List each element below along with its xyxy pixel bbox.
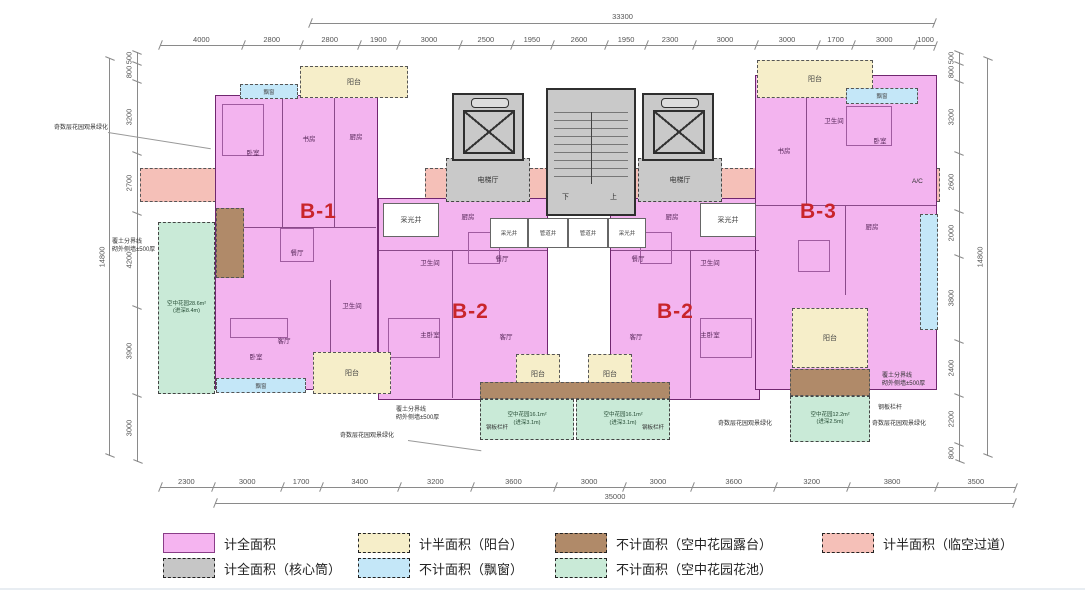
dim-value: 3200 <box>427 477 444 486</box>
annotation-railing: 钢板栏杆 <box>642 425 664 432</box>
dim-segment: 1700 <box>282 472 321 488</box>
dim-segment: 3600 <box>472 472 555 488</box>
dim-value: 1950 <box>618 35 635 44</box>
room-label: 书房 <box>778 145 791 155</box>
wall-line <box>756 205 936 206</box>
dim-segment: 800 <box>122 63 138 81</box>
right-total-dimension: 14800 <box>976 58 988 456</box>
room-label: 卧室 <box>874 135 887 145</box>
dim-value: 2400 <box>946 360 955 377</box>
dim-value: 3000 <box>650 477 667 486</box>
balcony-label: 阳台 <box>345 368 359 378</box>
dim-segment: 3200 <box>944 81 960 153</box>
room-label: 主卧室 <box>420 329 440 339</box>
right-dimension-col: 500800320026002000380024002200800 <box>944 52 960 462</box>
wall-line <box>845 205 846 295</box>
room-label: 卫生间 <box>420 257 440 267</box>
room-label: 餐厅 <box>632 253 645 263</box>
legend-item: 不计面积（空中花园露台） <box>555 533 772 553</box>
dim-value: 2300 <box>178 477 195 486</box>
dim-value: 4200 <box>124 252 133 269</box>
garden-zone: 空中花园16.1m² (进深3.1m) <box>576 399 670 440</box>
garden-depth-label: (进深3.1m) <box>514 420 541 427</box>
legend-swatch <box>555 533 607 553</box>
dim-value: 3600 <box>505 477 522 486</box>
legend-item: 计全面积 <box>163 533 276 553</box>
baywindow-zone <box>920 214 938 330</box>
annotation-railing: 钢板栏杆 <box>486 425 508 432</box>
stair-down-label: 下 <box>562 192 569 202</box>
baywindow-label: 飘窗 <box>263 88 274 96</box>
dim-value: 2800 <box>263 35 280 44</box>
dim-value: 1000 <box>917 35 934 44</box>
dim-value: 2200 <box>946 411 955 428</box>
dim-value: 3000 <box>876 35 893 44</box>
legend-swatch <box>822 533 874 553</box>
shaft-lightwell: 采光井 <box>490 218 528 248</box>
unit-label-b1: B-1 <box>300 200 337 224</box>
dim-segment: 3800 <box>848 472 935 488</box>
dim-value: 3000 <box>581 477 598 486</box>
dim-segment: 3000 <box>853 30 915 46</box>
legend-item: 计半面积（阳台） <box>358 533 523 553</box>
top-total-dimension: 33300 <box>310 12 935 24</box>
balcony-zone: 阳台 <box>792 308 868 368</box>
bottom-total-dimension: 35000 <box>215 492 1015 504</box>
dim-value: 800 <box>946 447 955 460</box>
room-label: 餐厅 <box>291 247 304 257</box>
dim-value: 3000 <box>717 35 734 44</box>
dim-segment: 2200 <box>944 395 960 444</box>
duct-label: 管道井 <box>540 229 557 237</box>
dim-value: 2800 <box>321 35 338 44</box>
left-total-label: 14800 <box>98 247 107 268</box>
elevator-hall-label: 电梯厅 <box>670 175 691 185</box>
dim-value: 1700 <box>827 35 844 44</box>
dim-segment: 2300 <box>646 30 694 46</box>
annotation-soil-wall: 覆土分界线砌外侧墙±500厚 <box>396 406 439 422</box>
dim-segment: 2400 <box>944 341 960 395</box>
legend-label: 不计面积（空中花园花池） <box>616 559 772 578</box>
legend-swatch <box>555 558 607 578</box>
furniture-table <box>798 240 830 272</box>
dim-value: 1950 <box>524 35 541 44</box>
elevator-cab-icon <box>653 110 705 154</box>
dim-segment: 3900 <box>122 307 138 394</box>
annotation-railing: 钢板栏杆 <box>878 404 902 412</box>
dim-value: 2500 <box>478 35 495 44</box>
lightwell-label: 采光井 <box>619 229 636 237</box>
legend-item: 不计面积（飘窗） <box>358 558 523 578</box>
garden-depth-label: (进深2.5m) <box>817 419 844 426</box>
dim-segment: 3200 <box>122 81 138 153</box>
dim-segment: 3000 <box>398 30 460 46</box>
dim-segment: 2800 <box>243 30 301 46</box>
annotation-greenery: 奇数层花园观景绿化 <box>340 432 394 440</box>
terrace-zone <box>790 369 870 396</box>
dim-value: 3900 <box>124 343 133 360</box>
shaft-duct: 管道井 <box>528 218 568 248</box>
dim-segment: 2000 <box>944 211 960 256</box>
garden-depth-label: (进深3.1m) <box>610 420 637 427</box>
dim-segment: 3400 <box>321 472 399 488</box>
dim-value: 3000 <box>421 35 438 44</box>
legend-item: 不计面积（空中花园花池） <box>555 558 772 578</box>
dim-segment: 3200 <box>775 472 848 488</box>
elevator-lobby-left: 电梯厅 <box>446 158 530 202</box>
dim-value: 3800 <box>884 477 901 486</box>
annotation-greenery: 奇数层花园观景绿化 <box>718 420 772 428</box>
garden-zone: 空中花园12.2m² (进深2.5m) <box>790 396 870 442</box>
wall-line <box>611 250 759 251</box>
garden-area-label: 空中花园28.6m² <box>167 301 206 308</box>
legend-swatch <box>163 558 215 578</box>
dim-value: 2600 <box>571 35 588 44</box>
room-label: 餐厅 <box>496 253 509 263</box>
room-label: 厨房 <box>666 211 679 221</box>
garden-area-label: 空中花园16.1m² <box>507 412 546 419</box>
dim-segment: 2600 <box>552 30 606 46</box>
dim-segment: 4200 <box>122 213 138 307</box>
room-label: 客厅 <box>630 331 643 341</box>
annotation-greenery: 奇数层花园观景绿化 <box>54 124 108 132</box>
room-label: 客厅 <box>500 331 513 341</box>
legend-swatch <box>358 533 410 553</box>
dim-segment: 3000 <box>213 472 282 488</box>
lightwell-left: 采光井 <box>383 203 439 237</box>
elevator-door <box>471 98 509 108</box>
stairwell: 下 上 <box>546 88 636 216</box>
legend-swatch <box>163 533 215 553</box>
dim-value: 1900 <box>370 35 387 44</box>
wall-line <box>452 250 453 398</box>
garden-area-label: 空中花园12.2m² <box>810 412 849 419</box>
room-label: 卧室 <box>247 147 260 157</box>
lightwell-label: 采光井 <box>501 229 518 237</box>
stair-divider <box>591 112 592 184</box>
room-label: 卫生间 <box>700 257 720 267</box>
bottom-total-label: 35000 <box>605 492 626 501</box>
wall-line <box>282 97 283 227</box>
bottom-dimension-row: 2300300017003400320036003000300036003200… <box>160 472 1016 488</box>
dim-segment: 3600 <box>692 472 775 488</box>
room-label: 书房 <box>303 133 316 143</box>
terrace-zone <box>216 208 244 278</box>
baywindow-label: 飘窗 <box>876 92 887 100</box>
room-label: 厨房 <box>350 131 363 141</box>
dim-value: 3800 <box>946 290 955 307</box>
dim-segment: 2700 <box>122 153 138 213</box>
dim-segment: 3000 <box>694 30 756 46</box>
room-label: 厨房 <box>866 221 879 231</box>
balcony-label: 阳台 <box>823 333 837 343</box>
dim-value: 3200 <box>803 477 820 486</box>
elevator-lobby-right: 电梯厅 <box>638 158 722 202</box>
baywindow-label: 飘窗 <box>255 382 266 390</box>
dim-segment: 3500 <box>936 472 1016 488</box>
wall-line <box>379 250 547 251</box>
dim-segment: 3000 <box>624 472 693 488</box>
dim-segment: 2600 <box>944 153 960 211</box>
room-label: 卧室 <box>250 351 263 361</box>
balcony-label: 阳台 <box>603 369 617 379</box>
dim-segment: 3000 <box>756 30 818 46</box>
dim-value: 800 <box>946 66 955 79</box>
lightwell-label: 采光井 <box>718 215 739 225</box>
dim-segment: 1950 <box>512 30 552 46</box>
annotation-soil-wall: 覆土分界线砌外侧墙±500厚 <box>112 238 155 254</box>
dim-segment: 3000 <box>555 472 624 488</box>
room-label: 客厅 <box>278 335 291 345</box>
dim-value: 800 <box>124 66 133 79</box>
lightwell-label: 采光井 <box>401 215 422 225</box>
balcony-label: 阳台 <box>808 74 822 84</box>
elevator-door <box>661 98 699 108</box>
stair-up-label: 上 <box>610 192 617 202</box>
dim-value: 2700 <box>124 175 133 192</box>
dim-value: 1700 <box>293 477 310 486</box>
left-total-dimension: 14800 <box>98 58 110 456</box>
dim-value: 3200 <box>946 109 955 126</box>
dim-value: 3600 <box>725 477 742 486</box>
garden-zone: 空中花园16.1m² (进深3.1m) <box>480 399 574 440</box>
dim-segment: 3800 <box>944 256 960 341</box>
room-label: 卫生间 <box>342 300 362 310</box>
right-total-label: 14800 <box>976 247 985 268</box>
elevator-hall-label: 电梯厅 <box>478 175 499 185</box>
dim-value: 2300 <box>662 35 679 44</box>
garden-zone: 空中花园28.6m² (进深8.4m) <box>158 222 215 394</box>
legend-label: 不计面积（空中花园露台） <box>616 534 772 553</box>
balcony-zone: 阳台 <box>300 66 408 98</box>
legend-item: 计全面积（核心筒） <box>163 558 341 578</box>
wall-line <box>690 250 691 398</box>
lightwell-right: 采光井 <box>700 203 756 237</box>
terrace-zone <box>480 382 670 399</box>
baywindow-zone: 飘窗 <box>216 378 306 393</box>
elevator-shaft-right <box>642 93 714 161</box>
dim-segment: 4000 <box>160 30 243 46</box>
legend-label: 计半面积（阳台） <box>419 534 523 553</box>
dim-value: 2000 <box>946 225 955 242</box>
legend-label: 计半面积（临空过道） <box>883 534 1013 553</box>
duct-label: 管道井 <box>580 229 597 237</box>
dim-segment: 800 <box>944 63 960 81</box>
annotation-ac: A/C <box>912 178 923 187</box>
elevator-cab-icon <box>463 110 515 154</box>
dim-value: 2600 <box>946 174 955 191</box>
shaft-lightwell: 采光井 <box>608 218 646 248</box>
dim-segment: 3200 <box>399 472 472 488</box>
balcony-label: 阳台 <box>531 369 545 379</box>
footer-divider <box>0 588 1085 590</box>
unit-label-b3: B-3 <box>800 200 837 224</box>
left-dimension-col: 50080032002700420039003000 <box>122 52 138 462</box>
unit-label-b2-right: B-2 <box>657 300 694 324</box>
room-label: 厨房 <box>462 211 475 221</box>
dim-value: 3500 <box>967 477 984 486</box>
leader-line <box>408 440 481 451</box>
room-label: 主卧室 <box>700 329 720 339</box>
balcony-label: 阳台 <box>347 77 361 87</box>
top-total-label: 33300 <box>612 12 633 21</box>
unit-label-b2-left: B-2 <box>452 300 489 324</box>
dim-value: 3000 <box>779 35 796 44</box>
annotation-soil-wall: 覆土分界线砌外侧墙±500厚 <box>882 372 925 388</box>
dim-segment: 2800 <box>301 30 359 46</box>
corridor-zone-left <box>140 168 216 202</box>
dim-value: 3400 <box>351 477 368 486</box>
elevator-shaft-left <box>452 93 524 161</box>
baywindow-zone: 飘窗 <box>240 84 298 99</box>
dim-segment: 1950 <box>606 30 646 46</box>
dim-value: 4000 <box>193 35 210 44</box>
dim-value: 3000 <box>124 420 133 437</box>
garden-depth-label: (进深8.4m) <box>173 308 200 315</box>
dim-value: 3200 <box>124 109 133 126</box>
baywindow-zone: 飘窗 <box>846 88 918 104</box>
dim-segment: 3000 <box>122 395 138 462</box>
dim-segment: 1700 <box>818 30 853 46</box>
dim-segment: 800 <box>944 444 960 462</box>
dim-segment: 2300 <box>160 472 213 488</box>
legend-label: 计全面积 <box>224 534 276 553</box>
legend-label: 不计面积（飘窗） <box>419 559 523 578</box>
balcony-zone: 阳台 <box>313 352 391 394</box>
dim-segment: 1900 <box>359 30 398 46</box>
legend-item: 计半面积（临空过道） <box>822 533 1013 553</box>
dim-segment: 1000 <box>915 30 936 46</box>
legend-label: 计全面积（核心筒） <box>224 559 341 578</box>
garden-area-label: 空中花园16.1m² <box>603 412 642 419</box>
dim-value: 3000 <box>239 477 256 486</box>
dim-segment: 2500 <box>460 30 512 46</box>
shaft-duct: 管道井 <box>568 218 608 248</box>
room-label: 卫生间 <box>824 115 844 125</box>
legend-swatch <box>358 558 410 578</box>
top-dimension-row: 4000280028001900300025001950260019502300… <box>160 30 936 46</box>
annotation-greenery: 奇数层花园观景绿化 <box>872 420 926 428</box>
